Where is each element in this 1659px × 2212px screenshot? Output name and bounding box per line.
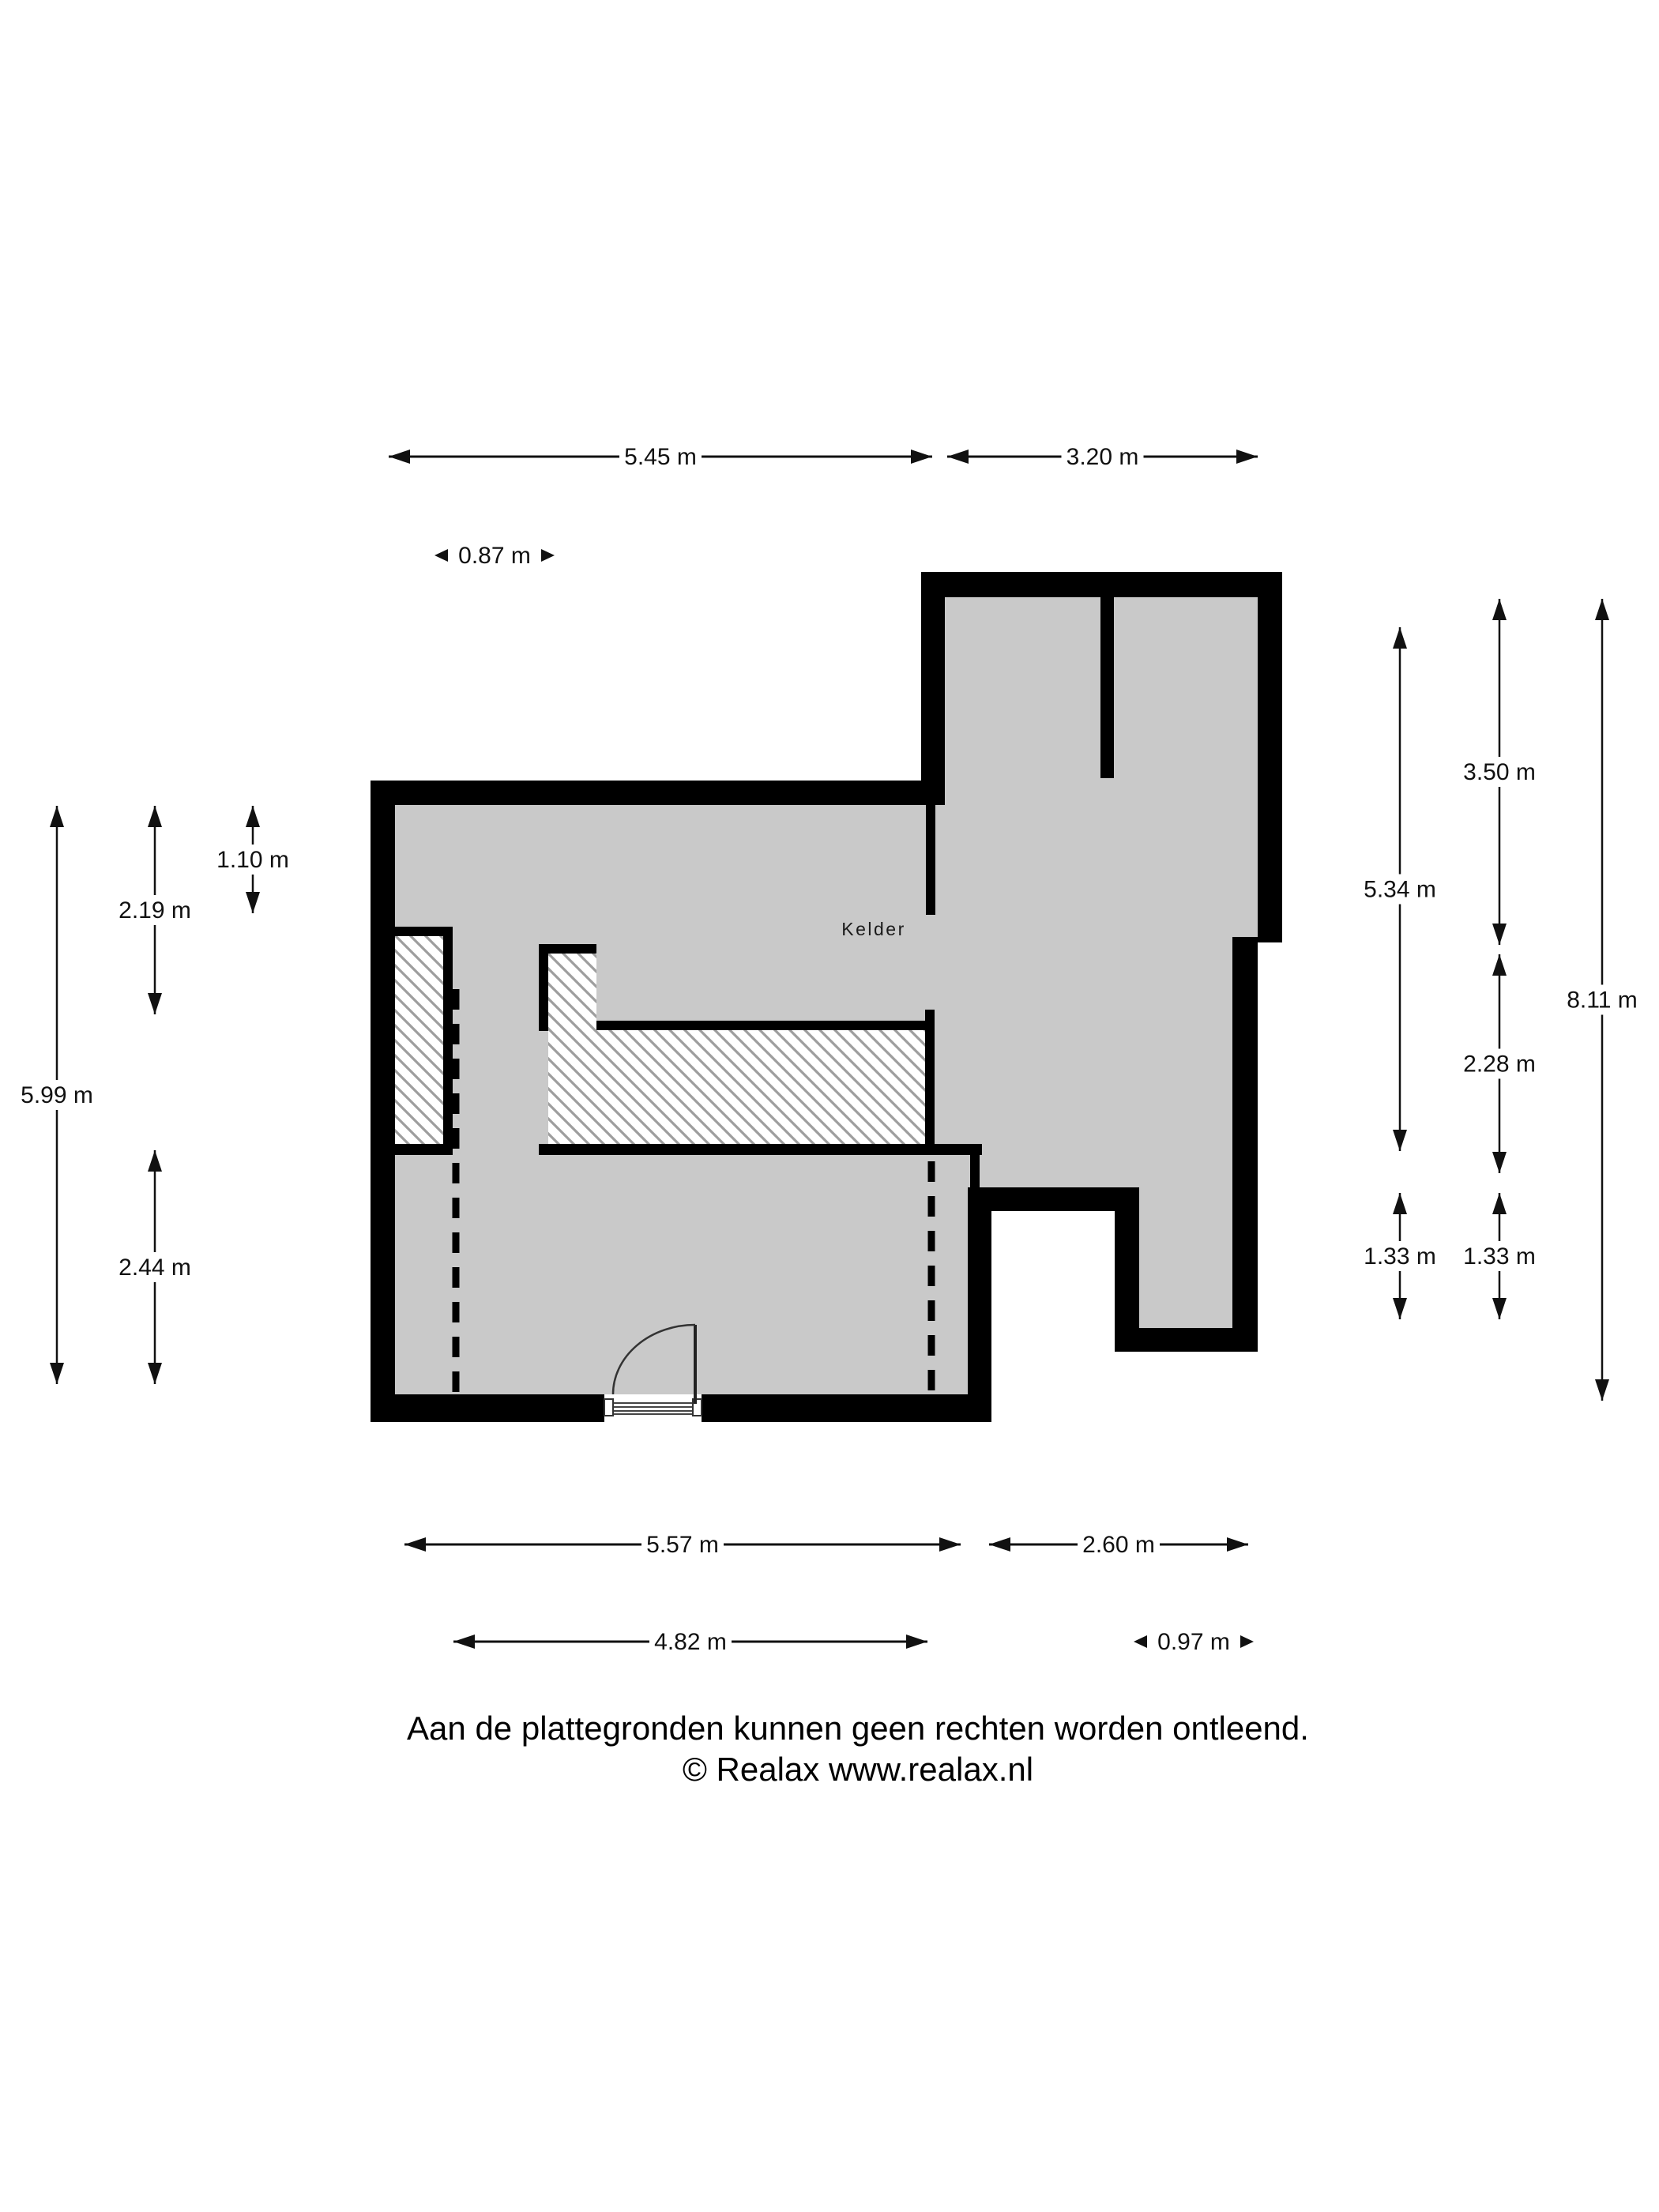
floorplan-canvas: Kelder 5.45 m3.20 m5.57 m2.60 m4.82 m1.1… xyxy=(0,0,1659,2212)
top-main-width-arrow-left xyxy=(389,450,410,464)
hatch-stair-main xyxy=(596,1030,925,1144)
wall-notch-top xyxy=(968,1187,1139,1211)
top-right-width-label: 3.20 m xyxy=(1066,444,1139,470)
wall-chimney-cap-bottom xyxy=(395,1144,453,1155)
door-opening xyxy=(604,1394,702,1422)
left-upper-sub-height-label: 1.10 m xyxy=(216,847,289,873)
top-right-width-arrow-left xyxy=(947,450,969,464)
bottom-right-width-arrow-left xyxy=(989,1537,1010,1552)
room-label: Kelder xyxy=(841,919,905,939)
bottom-inner-width-label: 4.82 m xyxy=(654,1629,727,1655)
top-main-width-arrow-right xyxy=(911,450,932,464)
top-left-small-width-arrow-right xyxy=(541,549,555,562)
wall-stair-top xyxy=(596,1021,925,1030)
left-total-height-label: 5.99 m xyxy=(21,1082,93,1108)
hatch-stair-strip xyxy=(548,954,596,1144)
door-jamb-left xyxy=(604,1399,613,1416)
left-upper-height-arrow-top xyxy=(148,806,162,827)
left-upper-sub-height-arrow-bottom xyxy=(246,892,260,913)
left-total-height-arrow-bottom xyxy=(50,1363,64,1384)
right-total-height-label: 8.11 m xyxy=(1567,987,1638,1014)
wall-stub xyxy=(970,1155,980,1191)
bottom-right-width-arrow-right xyxy=(1227,1537,1248,1552)
left-lower-height-arrow-bottom xyxy=(148,1363,162,1384)
bottom-main-width-label: 5.57 m xyxy=(646,1532,719,1558)
bottom-main-width-arrow-left xyxy=(404,1537,426,1552)
wall-stair-strip-left xyxy=(539,944,548,1031)
right-leg-height-b-arrow-top xyxy=(1492,1193,1507,1214)
right-leg-height-a-label: 1.33 m xyxy=(1364,1243,1436,1270)
left-upper-height-label: 2.19 m xyxy=(118,897,191,924)
bottom-right-width-label: 2.60 m xyxy=(1082,1532,1155,1558)
wall-kelder-divider xyxy=(926,805,935,915)
right-top-height-label: 3.50 m xyxy=(1463,759,1536,785)
bottom-leg-width-arrow-left xyxy=(1134,1635,1147,1648)
footer-disclaimer: Aan de plattegronden kunnen geen rechten… xyxy=(407,1710,1309,1747)
right-mid-height-label: 2.28 m xyxy=(1463,1051,1536,1078)
right-open-height-arrow-bottom xyxy=(1393,1130,1407,1151)
wall-stair-right xyxy=(925,1010,935,1155)
top-right-width-arrow-right xyxy=(1236,450,1258,464)
bottom-leg-width-label: 0.97 m xyxy=(1157,1629,1230,1655)
left-upper-height-arrow-bottom xyxy=(148,993,162,1014)
left-total-height-arrow-top xyxy=(50,806,64,827)
wall-chimney-right xyxy=(443,936,453,1144)
right-open-height-label: 5.34 m xyxy=(1364,877,1436,903)
right-total-height-arrow-top xyxy=(1595,599,1609,620)
footer-copyright: © Realax www.realax.nl xyxy=(683,1751,1033,1788)
floorplan-page: Kelder 5.45 m3.20 m5.57 m2.60 m4.82 m1.1… xyxy=(0,0,1659,2212)
right-leg-height-a-arrow-top xyxy=(1393,1193,1407,1214)
right-mid-height-arrow-top xyxy=(1492,954,1507,976)
left-upper-sub-height-arrow-top xyxy=(246,806,260,827)
wall-stair-bottom xyxy=(539,1144,982,1155)
right-leg-height-b-label: 1.33 m xyxy=(1463,1243,1536,1270)
top-main-width-label: 5.45 m xyxy=(624,444,697,470)
top-left-small-width-label: 0.87 m xyxy=(458,543,531,569)
right-total-height-arrow-bottom xyxy=(1595,1379,1609,1401)
wall-stair-strip-cap xyxy=(539,944,596,954)
right-top-height-arrow-top xyxy=(1492,599,1507,620)
right-mid-height-arrow-bottom xyxy=(1492,1152,1507,1173)
bottom-inner-width-arrow-left xyxy=(453,1635,475,1649)
right-leg-height-b-arrow-bottom xyxy=(1492,1298,1507,1319)
hatch-chimney xyxy=(395,936,443,1144)
bottom-leg-width-arrow-right xyxy=(1240,1635,1254,1648)
bottom-main-width-arrow-right xyxy=(939,1537,961,1552)
top-left-small-width-arrow-left xyxy=(434,549,448,562)
bottom-inner-width-arrow-right xyxy=(906,1635,927,1649)
left-lower-height-label: 2.44 m xyxy=(118,1255,191,1281)
wall-upper-partition xyxy=(1100,597,1114,778)
wall-chimney-cap-top xyxy=(395,927,453,936)
right-top-height-arrow-bottom xyxy=(1492,924,1507,945)
right-leg-height-a-arrow-bottom xyxy=(1393,1298,1407,1319)
right-open-height-arrow-top xyxy=(1393,627,1407,649)
left-lower-height-arrow-top xyxy=(148,1150,162,1172)
